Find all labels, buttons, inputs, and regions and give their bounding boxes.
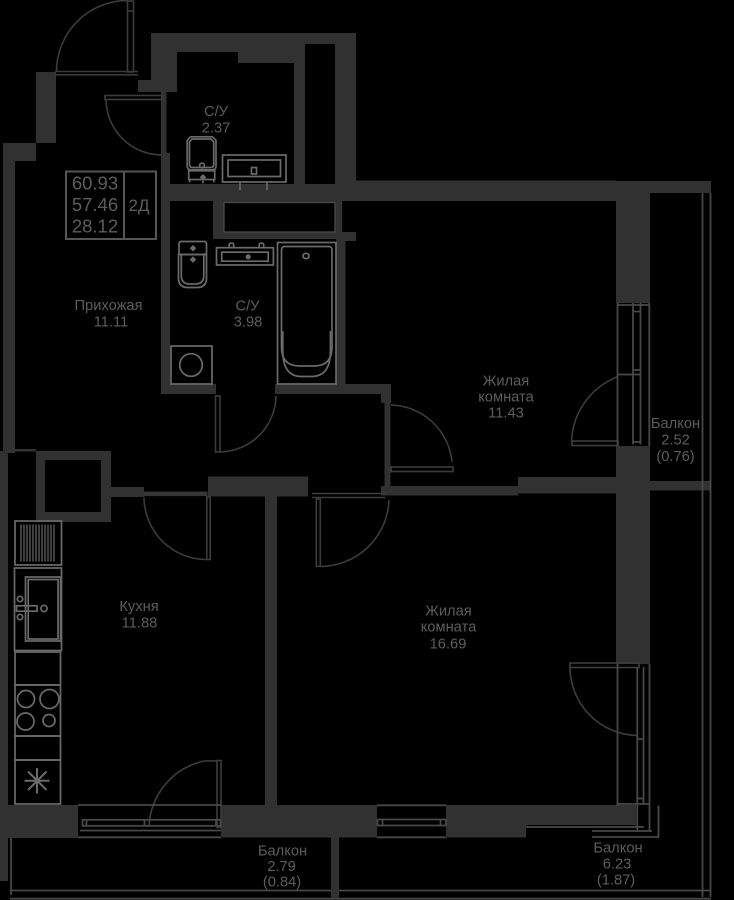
svg-text:2.52: 2.52 [661, 433, 690, 449]
svg-text:Балкон: Балкон [651, 416, 700, 432]
svg-text:16.69: 16.69 [430, 637, 467, 653]
svg-text:Жилая: Жилая [425, 604, 471, 620]
svg-text:2.37: 2.37 [202, 121, 231, 137]
svg-text:С/У: С/У [235, 299, 260, 315]
svg-text:(0.76): (0.76) [656, 449, 694, 465]
svg-text:28.12: 28.12 [72, 216, 118, 237]
svg-text:Жилая: Жилая [483, 374, 529, 390]
svg-text:6.23: 6.23 [603, 857, 632, 873]
svg-text:11.88: 11.88 [122, 616, 158, 632]
svg-text:2.79: 2.79 [267, 859, 296, 875]
svg-text:комната: комната [478, 390, 534, 406]
svg-text:комната: комната [421, 620, 477, 636]
svg-text:2Д: 2Д [129, 196, 150, 215]
svg-text:11.43: 11.43 [488, 406, 524, 422]
svg-text:Прихожая: Прихожая [74, 298, 142, 314]
svg-text:57.46: 57.46 [72, 194, 118, 215]
svg-text:11.11: 11.11 [94, 315, 129, 331]
svg-text:Балкон: Балкон [593, 841, 642, 857]
svg-text:Кухня: Кухня [119, 599, 158, 615]
svg-text:(0.84): (0.84) [263, 875, 301, 891]
svg-text:С/У: С/У [204, 104, 229, 120]
svg-text:3.98: 3.98 [234, 315, 263, 331]
svg-text:Балкон: Балкон [258, 844, 307, 860]
svg-text:60.93: 60.93 [72, 173, 118, 194]
svg-text:(1.87): (1.87) [597, 873, 635, 889]
